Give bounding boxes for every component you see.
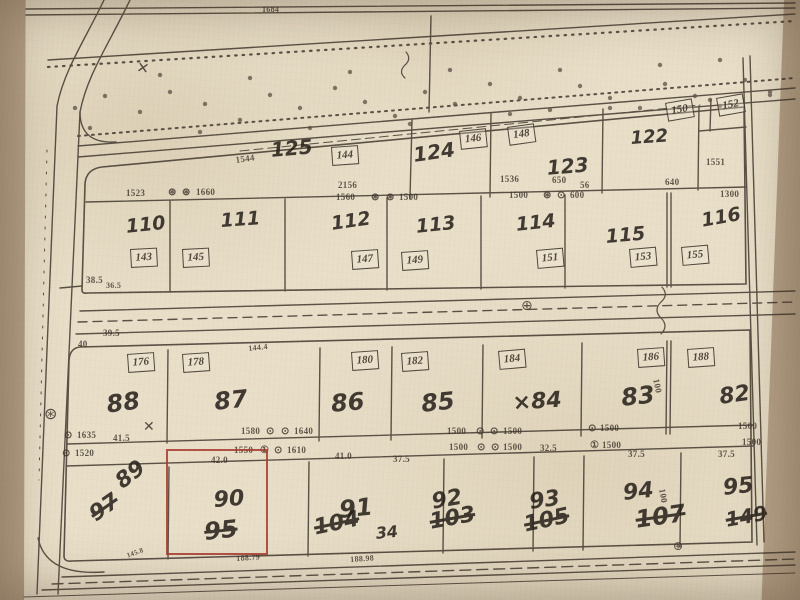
x-mark-: ✕: [135, 60, 150, 77]
measurement-label-100: 100: [651, 378, 663, 394]
measurement-label-: ⊙: [490, 427, 499, 437]
measurement-label-38.5: 38.5: [86, 276, 103, 285]
measurement-label-: ⊙: [477, 443, 486, 453]
measurement-label-: ⊛: [168, 188, 177, 198]
boxed-lot-number-152: 152: [716, 93, 745, 116]
boxed-lot-number-144: 144: [331, 145, 359, 166]
old-parcel-number-103: 103: [428, 504, 477, 534]
parcel-number-89: 89: [112, 457, 150, 493]
measurement-label-1500: 1500: [602, 441, 621, 450]
circle-plus-symbol-: ⊕: [521, 299, 533, 313]
measurement-label-41.5: 41.5: [113, 434, 130, 443]
measurement-label-1580: 1580: [241, 427, 260, 436]
measurement-label-2156: 2156: [338, 181, 357, 190]
measurement-label-650: 650: [552, 176, 566, 185]
measurement-label-1551: 1551: [706, 158, 725, 167]
parcel-number-87: 87: [213, 387, 249, 414]
measurement-label-: ⊛: [371, 193, 380, 203]
old-parcel-number-97: 97: [86, 490, 124, 526]
measurement-label-36.5: 36.5: [106, 282, 121, 290]
measurement-label-600: 600: [570, 191, 584, 200]
measurement-label-640: 640: [665, 178, 679, 187]
parcel-number-125: 125: [270, 136, 313, 160]
measurement-label-: ⊙: [557, 191, 566, 201]
old-parcel-number-105: 105: [522, 505, 572, 536]
parcel-number-124: 124: [412, 139, 456, 165]
boxed-lot-number-176: 176: [127, 352, 155, 373]
measurement-label-1500: 1500: [503, 443, 522, 452]
parcel-number-85: 85: [420, 389, 456, 416]
measurement-label-1300: 1300: [720, 190, 739, 199]
measurement-label-1520: 1520: [75, 449, 94, 458]
old-parcel-number-149: 149: [724, 503, 769, 530]
parcel-number-115: 115: [605, 225, 646, 247]
boxed-lot-number-148: 148: [507, 123, 536, 146]
measurement-label-: ⊙: [491, 443, 500, 453]
measurement-label-1660: 1660: [196, 188, 215, 197]
measurement-label-: ⊛: [386, 193, 395, 203]
gear-symbol-: ⊛: [44, 406, 57, 422]
parcel-number-82: 82: [718, 383, 751, 409]
measurement-label-100: 100: [657, 488, 668, 504]
parcel-number-83: 83: [620, 383, 656, 410]
boxed-lot-number-184: 184: [498, 349, 526, 370]
measurement-label-: ⊙: [266, 427, 275, 437]
old-parcel-number-34: 34: [375, 524, 399, 542]
measurement-label-1640: 1640: [294, 427, 313, 436]
measurement-label-: ⊙: [476, 427, 485, 437]
boxed-lot-number-155: 155: [681, 245, 709, 266]
cadastral-map-photo: 1251241231221101111121131141151168887868…: [0, 0, 800, 600]
measurement-label-1500: 1500: [399, 193, 418, 202]
boxed-lot-number-153: 153: [629, 247, 657, 268]
measurement-label-39.5: 39.5: [103, 329, 120, 338]
measurement-label-1544: 1544: [235, 153, 255, 165]
parcel-number-112: 112: [330, 209, 372, 233]
measurement-label-1635: 1635: [77, 431, 96, 440]
measurement-label-37.5: 37.5: [628, 450, 645, 459]
boxed-lot-number-186: 186: [637, 347, 665, 368]
parcel-number-111: 111: [220, 209, 261, 231]
boxed-lot-number-180: 180: [351, 350, 379, 371]
parcel-number-114: 114: [515, 212, 556, 235]
measurement-label-56: 56: [580, 181, 590, 190]
measurement-label-1500: 1500: [503, 427, 522, 436]
x-mark-: ✕: [143, 420, 155, 434]
parcel-number-116: 116: [700, 205, 742, 231]
measurement-label-188.98: 188.98: [350, 554, 374, 564]
measurement-label-: ⊛: [182, 188, 191, 198]
measurement-label-144.4: 144.4: [248, 343, 268, 353]
measurement-label-1500: 1500: [449, 443, 468, 452]
measurement-label-37.5: 37.5: [393, 455, 410, 464]
measurement-label-40: 40: [78, 340, 88, 349]
parcel-number-86: 86: [330, 389, 365, 416]
measurement-label-: ⊙: [274, 446, 283, 456]
boxed-lot-number-147: 147: [351, 249, 379, 270]
boxed-lot-number-188: 188: [687, 347, 715, 368]
parcel-number-95: 95: [722, 475, 755, 500]
parcel-90-highlight-box: [166, 449, 268, 555]
old-parcel-number-107: 107: [634, 501, 687, 532]
measurement-label-: ⊙: [281, 427, 290, 437]
measurement-label-41.0: 41.0: [335, 452, 352, 461]
boxed-lot-number-149: 149: [401, 250, 429, 271]
measurement-label-1684: 1684: [262, 6, 279, 14]
measurement-label-1523: 1523: [126, 189, 145, 198]
measurement-label-1610: 1610: [287, 446, 306, 455]
measurement-label-1500: 1500: [738, 422, 757, 431]
boxed-lot-number-182: 182: [401, 351, 429, 372]
boxed-lot-number-143: 143: [130, 248, 157, 268]
measurement-label-1560: 1560: [336, 193, 355, 202]
measurement-label-32.5: 32.5: [540, 444, 557, 453]
parcel-number-122: 122: [630, 127, 669, 148]
measurement-label-145.8: 145.8: [126, 547, 145, 559]
parcel-number-113: 113: [415, 214, 456, 237]
measurement-label-: ⊙: [588, 424, 597, 434]
measurement-label-37.5: 37.5: [718, 450, 735, 459]
map-labels-layer: 1251241231221101111121131141151168887868…: [0, 0, 800, 600]
measurement-label-: ⊛: [543, 191, 552, 201]
measurement-label-: ⊙: [62, 449, 71, 459]
measurement-label-: ①: [590, 441, 599, 451]
measurement-label-1500: 1500: [742, 438, 761, 447]
boxed-lot-number-151: 151: [536, 248, 564, 269]
measurement-label-: ⊙: [64, 431, 73, 441]
measurement-label-1500: 1500: [447, 427, 466, 436]
parcel-number-84: ×84: [512, 390, 562, 415]
parcel-number-94: 94: [622, 480, 655, 505]
measurement-label-1536: 1536: [500, 175, 519, 184]
measurement-label-1500: 1500: [600, 424, 619, 433]
measurement-label-1500: 1500: [509, 191, 528, 200]
circle-plus-symbol-: ⊕: [673, 540, 683, 552]
old-parcel-number-104: 104: [312, 508, 362, 539]
boxed-lot-number-178: 178: [182, 352, 210, 373]
boxed-lot-number-150: 150: [665, 98, 694, 121]
parcel-number-110: 110: [125, 214, 166, 237]
boxed-lot-number-145: 145: [182, 248, 209, 268]
boxed-lot-number-146: 146: [459, 128, 487, 150]
parcel-number-88: 88: [105, 388, 141, 416]
